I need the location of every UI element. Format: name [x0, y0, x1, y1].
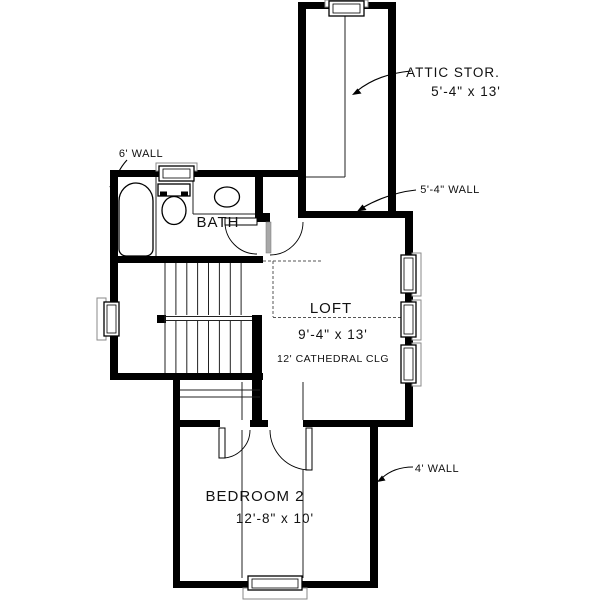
sink — [215, 187, 240, 207]
window-bedroom-bottom — [243, 576, 307, 599]
hall-railing-lines — [180, 390, 260, 397]
wall-stairwell-right — [252, 315, 262, 427]
stair-treads-upper — [176, 263, 241, 315]
attic-room-label: ATTIC STOR. — [406, 65, 500, 80]
staircase — [165, 263, 252, 373]
window-loft-right-3 — [401, 343, 421, 386]
wall-bedroom-top-b — [303, 420, 413, 427]
wall-bedroom-right — [370, 420, 378, 588]
wall-stair-top — [110, 256, 263, 263]
loft-room-label: LOFT — [310, 300, 352, 317]
window-loft-right-2 — [401, 300, 421, 340]
floor-plan-canvas: 6' WALL ATTIC STOR. 5'-4" x 13' 5'-4" WA… — [0, 0, 600, 600]
six-ft-wall-label: 6' WALL — [119, 148, 163, 160]
attic-arrow — [352, 71, 411, 95]
wall-bath-right — [255, 177, 263, 213]
wall-bedroom-left — [173, 373, 180, 588]
loft-ceiling-note: 12' CATHEDRAL CLG — [277, 353, 389, 365]
wall-attic-right — [388, 2, 396, 218]
stair-divider-lines — [166, 317, 252, 321]
five-four-wall-label: 5'-4" WALL — [420, 184, 480, 196]
wall-bedroom-top-jamb — [250, 420, 268, 427]
window-bath — [156, 163, 197, 181]
wall-attic-left — [298, 2, 306, 218]
window-stair-left — [97, 298, 119, 340]
floor-plan-drawing: 6' WALL ATTIC STOR. 5'-4" x 13' 5'-4" WA… — [0, 0, 600, 600]
window-loft-right-1 — [401, 253, 421, 296]
doors — [219, 218, 312, 470]
bedroom2-room-label: BEDROOM 2 — [205, 488, 304, 505]
window-attic-top — [325, 0, 368, 16]
bedroom2-room-dims: 12'-8" x 10' — [236, 511, 314, 526]
wall-bath-top — [110, 170, 306, 177]
bedroom-door-2 — [270, 428, 312, 470]
five-four-wall-arrow — [357, 190, 416, 212]
loft-hall-door — [266, 222, 303, 255]
wall-stair-bottom — [110, 373, 263, 380]
attic-storage-edge-line — [306, 16, 345, 177]
toilet — [158, 184, 190, 225]
bedroom-door-1 — [219, 428, 250, 458]
attic-room-dims: 5'-4" x 13' — [431, 84, 501, 99]
four-ft-wall-arrow — [377, 467, 413, 482]
bath-room-label: BATH — [197, 214, 240, 231]
wall-loft-top — [298, 211, 413, 218]
bathtub — [119, 183, 153, 256]
wall-left-exterior — [110, 170, 118, 380]
loft-room-dims: 9'-4" x 13' — [298, 327, 368, 342]
wall-bedroom-top-a — [173, 420, 220, 427]
stair-treads-lower — [176, 321, 241, 373]
four-ft-wall-label: 4' WALL — [415, 463, 459, 475]
